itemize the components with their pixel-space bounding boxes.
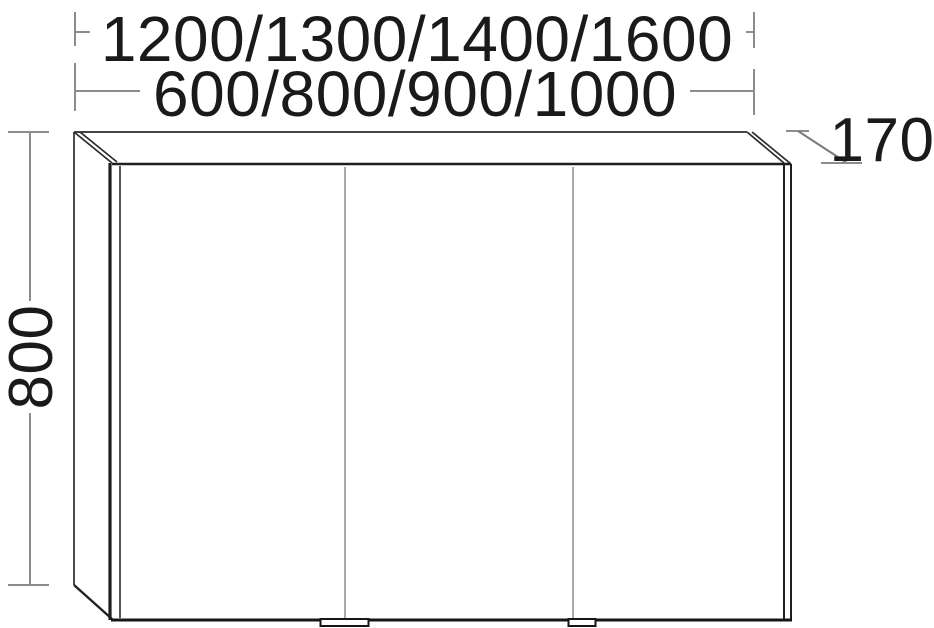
mirror-cabinet-dimension-drawing: 1200/1300/1400/1600 600/800/900/1000 800… [0,0,934,628]
cabinet-drawing [74,132,792,626]
width-dimension-row2: 600/800/900/1000 [75,58,754,130]
cabinet-top-face [74,132,791,619]
top-right-corner-edge-outer [747,132,784,163]
top-left-corner-edge-inner [80,132,117,162]
bottom-handle-right [569,619,596,626]
technical-drawing-canvas: 1200/1300/1400/1600 600/800/900/1000 800… [0,0,934,628]
top-right-corner-edge-inner [752,132,791,164]
height-label: 800 [0,305,66,410]
depth-dimension: 170 [786,106,934,175]
height-dimension: 800 [0,132,66,585]
width-options-row2-label: 600/800/900/1000 [153,58,677,130]
top-left-corner-edge-outer [74,132,112,163]
mirror-door-front [110,163,792,621]
bottom-handle-left [321,619,369,626]
bottom-left-corner-edge [74,585,112,619]
depth-label: 170 [830,106,934,175]
